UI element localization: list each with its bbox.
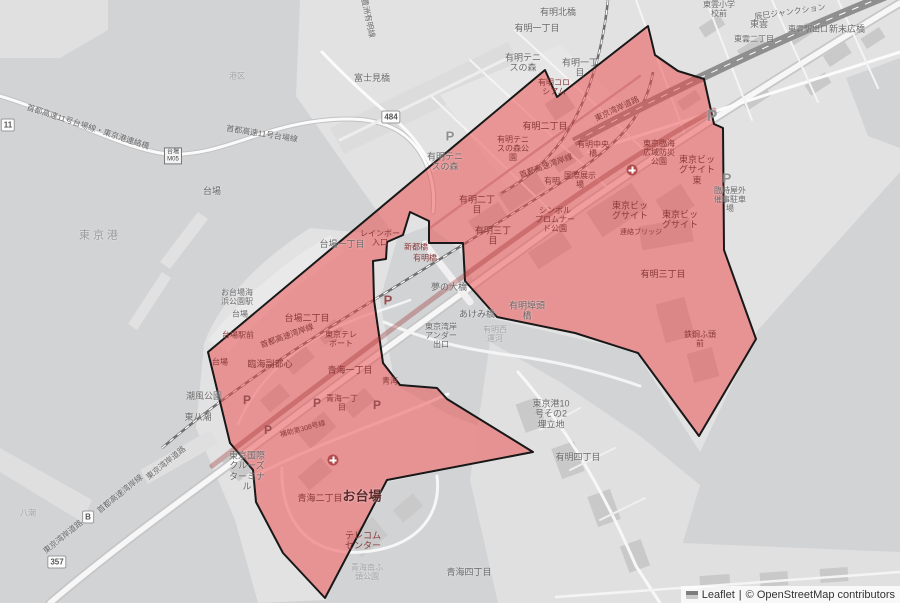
osm-attribution-link[interactable]: © OpenStreetMap contributors bbox=[746, 589, 895, 601]
leaflet-link[interactable]: Leaflet bbox=[702, 589, 735, 601]
leaflet-flag-icon bbox=[686, 591, 698, 599]
map-canvas[interactable]: 首都高速11号台場線・東京港連絡橋首都高速11号台場線豊洲有明線富士見橋有明北橋… bbox=[0, 0, 900, 603]
map-tiles bbox=[0, 0, 900, 603]
attribution-bar: Leaflet | © OpenStreetMap contributors bbox=[681, 586, 900, 603]
attribution-separator: | bbox=[739, 589, 742, 601]
